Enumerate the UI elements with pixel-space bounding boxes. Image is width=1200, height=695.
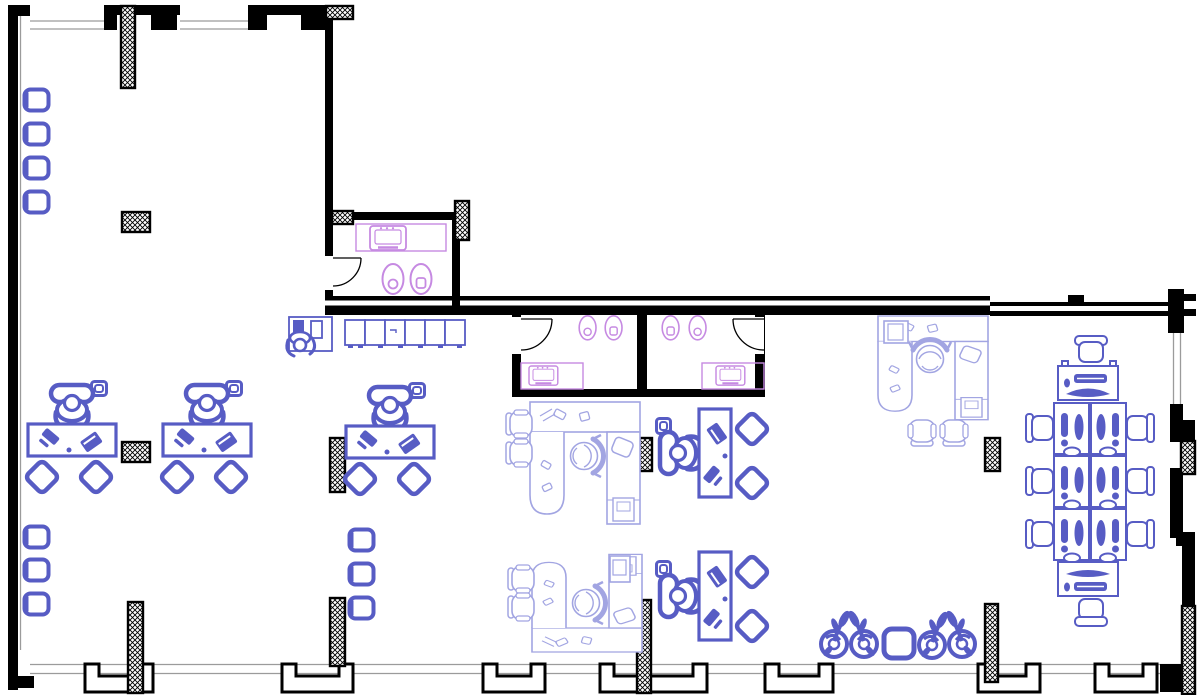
lounge-plant <box>944 609 975 657</box>
executive-chair <box>573 582 606 624</box>
column <box>332 211 353 224</box>
reception-desk <box>287 317 332 356</box>
sink <box>716 366 745 385</box>
workstation <box>25 382 116 494</box>
wall-seat <box>350 598 374 619</box>
guest-chair <box>508 593 534 621</box>
door-restroom-top <box>324 256 361 290</box>
walls <box>8 5 1196 690</box>
toilet <box>411 264 432 294</box>
door-restroom-left <box>511 317 552 354</box>
column <box>330 438 345 492</box>
toilet <box>662 316 679 340</box>
wall-seat <box>350 530 374 551</box>
column <box>1181 441 1195 474</box>
guest-chair <box>506 410 532 438</box>
floor-plan <box>0 0 1200 695</box>
column <box>122 212 150 232</box>
toilet <box>579 316 596 340</box>
lounge-area <box>821 609 975 658</box>
window-lines <box>30 21 1186 674</box>
cabinet <box>365 320 385 345</box>
cabinet <box>385 320 405 345</box>
cabinet <box>425 320 445 345</box>
cabinet <box>405 320 425 345</box>
guest-chair <box>908 420 936 446</box>
column <box>330 598 345 666</box>
cabinet <box>345 320 365 345</box>
guest-chair <box>506 439 532 467</box>
toilet <box>605 316 622 340</box>
lounge-plant <box>821 609 852 657</box>
wall-seat <box>25 124 49 145</box>
door-restroom-right <box>733 317 764 354</box>
executive-chair <box>909 339 951 372</box>
column <box>1182 606 1195 694</box>
wall-seat <box>25 90 49 111</box>
wall-seat <box>350 564 374 585</box>
column <box>326 6 353 19</box>
restroom-left <box>521 316 622 389</box>
guest-chair <box>940 420 968 446</box>
wall-seat <box>25 527 49 548</box>
bench-row <box>1026 403 1154 457</box>
sink <box>529 366 558 385</box>
floor-plan-drawing <box>0 0 1200 695</box>
wall-seat <box>25 192 49 213</box>
wall-seat <box>25 560 49 581</box>
workstation <box>160 382 251 494</box>
lounge-plant <box>846 609 877 657</box>
toilet <box>383 264 404 294</box>
column <box>455 201 469 240</box>
bench-cluster <box>1026 336 1154 626</box>
sink <box>370 226 406 250</box>
column <box>985 438 1000 471</box>
wall-seats <box>25 90 374 619</box>
executive-desk-right <box>878 316 988 446</box>
column <box>122 442 150 462</box>
wall-seat <box>25 158 49 179</box>
column <box>121 6 135 88</box>
cabinet-run <box>345 320 465 348</box>
cabinet <box>445 320 465 345</box>
executive-chair <box>571 435 604 477</box>
column <box>985 604 998 682</box>
bench-row <box>1026 456 1154 510</box>
side-table <box>884 629 914 658</box>
lounge-plant <box>919 610 950 658</box>
bench-row <box>1026 509 1154 563</box>
executive-desk-bottom <box>508 554 642 652</box>
restroom-top <box>356 224 446 294</box>
workstation <box>657 409 769 500</box>
workstation <box>657 552 769 643</box>
guest-chair <box>508 565 534 593</box>
workstation <box>343 384 434 496</box>
executive-desk-center <box>506 402 640 524</box>
toilet <box>689 316 706 340</box>
wall-seat <box>25 594 49 615</box>
restroom-right <box>662 316 764 389</box>
column <box>128 602 143 693</box>
